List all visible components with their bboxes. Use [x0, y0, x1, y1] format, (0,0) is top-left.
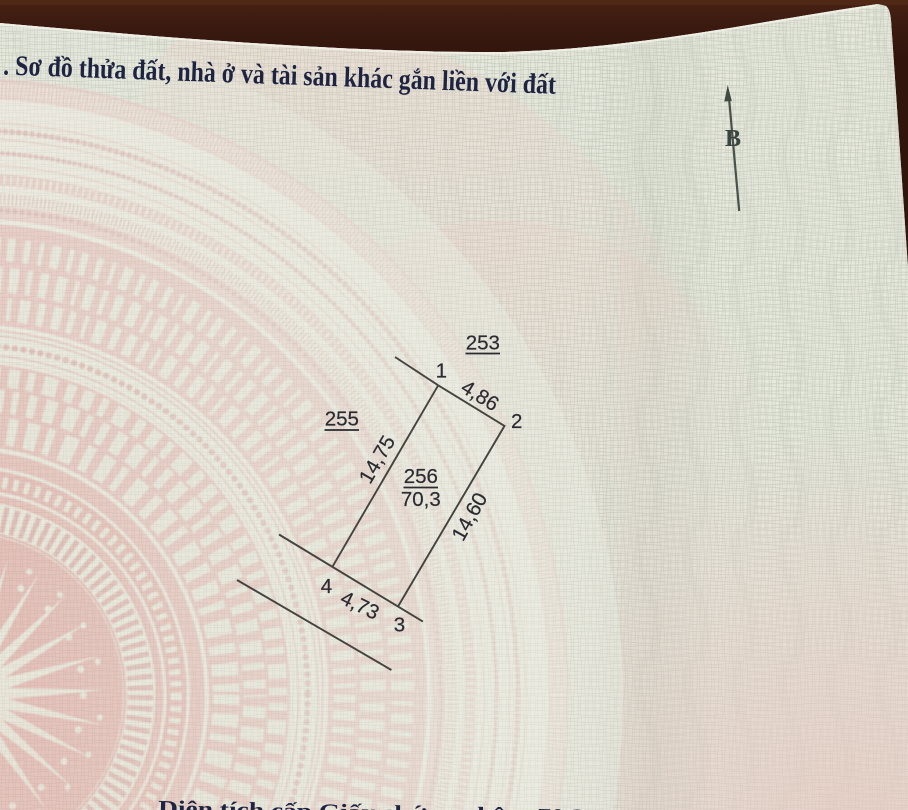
- svg-text:B: B: [725, 126, 741, 152]
- svg-text:4: 4: [321, 575, 332, 598]
- svg-text:256: 256: [404, 465, 438, 488]
- svg-text:70,3: 70,3: [401, 488, 441, 511]
- svg-text:2: 2: [511, 410, 522, 433]
- svg-text:255: 255: [325, 408, 359, 431]
- svg-text:253: 253: [466, 332, 500, 355]
- svg-text:3: 3: [394, 614, 405, 637]
- svg-text:1: 1: [436, 359, 447, 382]
